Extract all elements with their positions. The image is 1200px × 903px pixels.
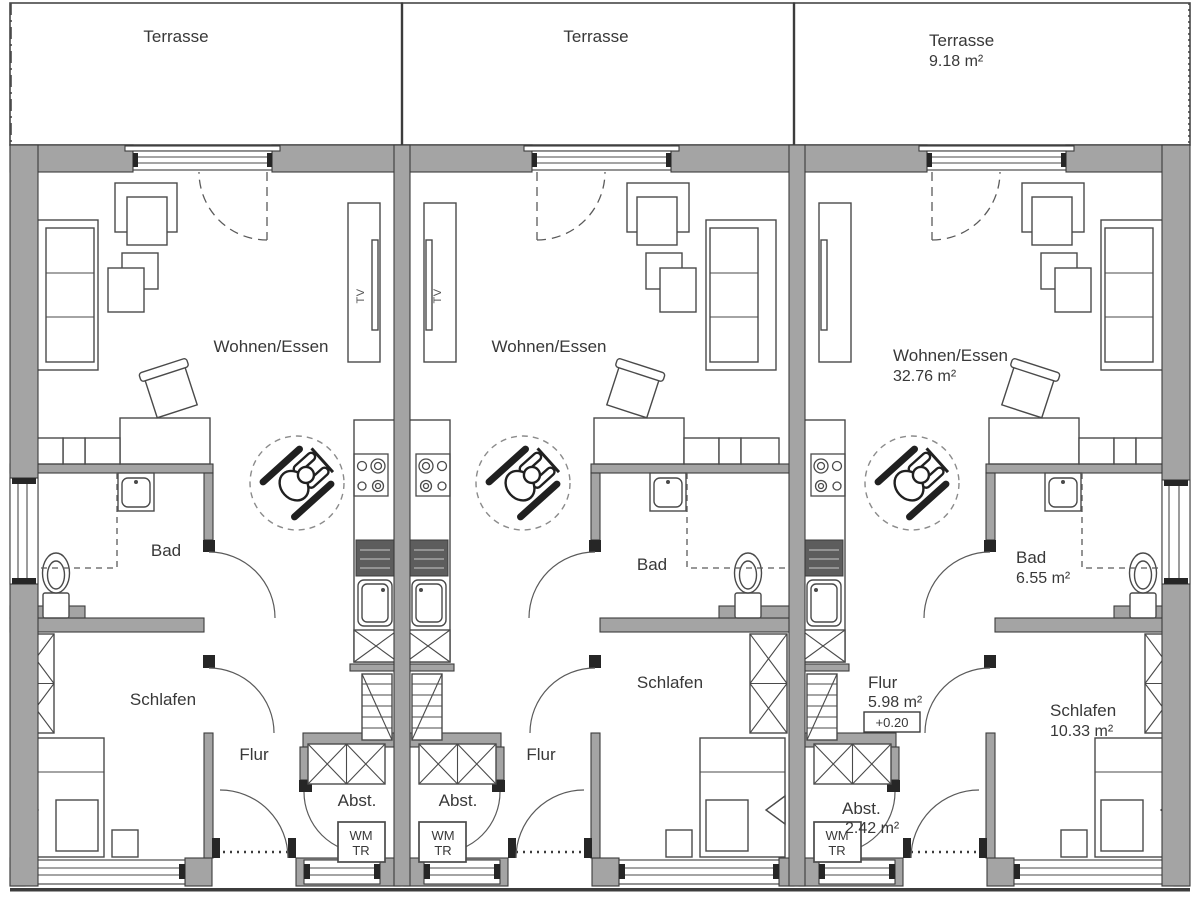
bad-label-unit-2: Bad: [637, 555, 667, 574]
schlafen-area-unit-3: 10.33 m²: [1050, 723, 1114, 740]
flur-label-unit-2: Flur: [526, 745, 556, 764]
flur-label-unit-1: Flur: [239, 745, 269, 764]
terrasse-label-unit-1: Terrasse: [143, 27, 208, 46]
schlafen-label-unit-2: Schlafen: [637, 673, 703, 692]
floor-plan-canvas: Terrasse Wohnen/Essen Bad Schlafen Flur …: [0, 0, 1200, 903]
exterior-wall-right: [1162, 145, 1190, 886]
terrace-unit-1: [10, 3, 402, 145]
wm-label-unit-1: WM: [349, 828, 372, 843]
level-label-unit-3: +0.20: [876, 715, 909, 730]
terrasse-label-unit-3: Terrasse: [929, 31, 994, 50]
bad-label-unit-1: Bad: [151, 541, 181, 560]
terrace-unit-2: [402, 3, 794, 145]
wohnen-essen-label-unit-1: Wohnen/Essen: [214, 337, 329, 356]
terrace-unit-3: [794, 3, 1190, 145]
unit-1-geometry: [10, 145, 400, 886]
wheelchair-symbol-unit-2: [476, 436, 570, 530]
tr-label-unit-2: TR: [434, 843, 451, 858]
flur-area-unit-3: 5.98 m²: [868, 694, 923, 711]
wohnen-essen-label-unit-2: Wohnen/Essen: [492, 337, 607, 356]
flur-label-unit-3: Flur: [868, 673, 898, 692]
wheelchair-symbol-unit-1: [250, 436, 344, 530]
tv-label-unit-2: TV: [432, 288, 444, 303]
schlafen-label-unit-3: Schlafen: [1050, 701, 1116, 720]
ground-line: [10, 888, 1190, 892]
tv-label-unit-1: TV: [355, 288, 367, 303]
wm-label-unit-2: WM: [431, 828, 454, 843]
wohnen-essen-label-unit-3: Wohnen/Essen: [893, 346, 1008, 365]
abst-area-unit-3: 2.42 m²: [845, 820, 900, 837]
terrasse-area-unit-3: 9.18 m²: [929, 53, 984, 70]
abst-label-unit-3: Abst.: [842, 799, 881, 818]
abst-label-unit-1: Abst.: [338, 791, 377, 810]
exterior-wall-left: [10, 145, 38, 886]
party-wall-1: [394, 145, 410, 886]
abst-label-unit-2: Abst.: [439, 791, 478, 810]
tr-label-unit-3: TR: [828, 843, 845, 858]
wohnen-essen-area-unit-3: 32.76 m²: [893, 368, 957, 385]
schlafen-label-unit-1: Schlafen: [130, 690, 196, 709]
floor-plan-drawing: Terrasse Wohnen/Essen Bad Schlafen Flur …: [0, 0, 1200, 903]
party-wall-2: [789, 145, 805, 886]
bad-area-unit-3: 6.55 m²: [1016, 570, 1071, 587]
tr-label-unit-1: TR: [352, 843, 369, 858]
terrasse-label-unit-2: Terrasse: [563, 27, 628, 46]
wheelchair-symbol-unit-3: [865, 436, 959, 530]
unit-3-geometry: [799, 145, 1189, 886]
bad-label-unit-3: Bad: [1016, 548, 1046, 567]
wm-label-unit-3: WM: [825, 828, 848, 843]
unit-2-geometry: [404, 145, 794, 886]
